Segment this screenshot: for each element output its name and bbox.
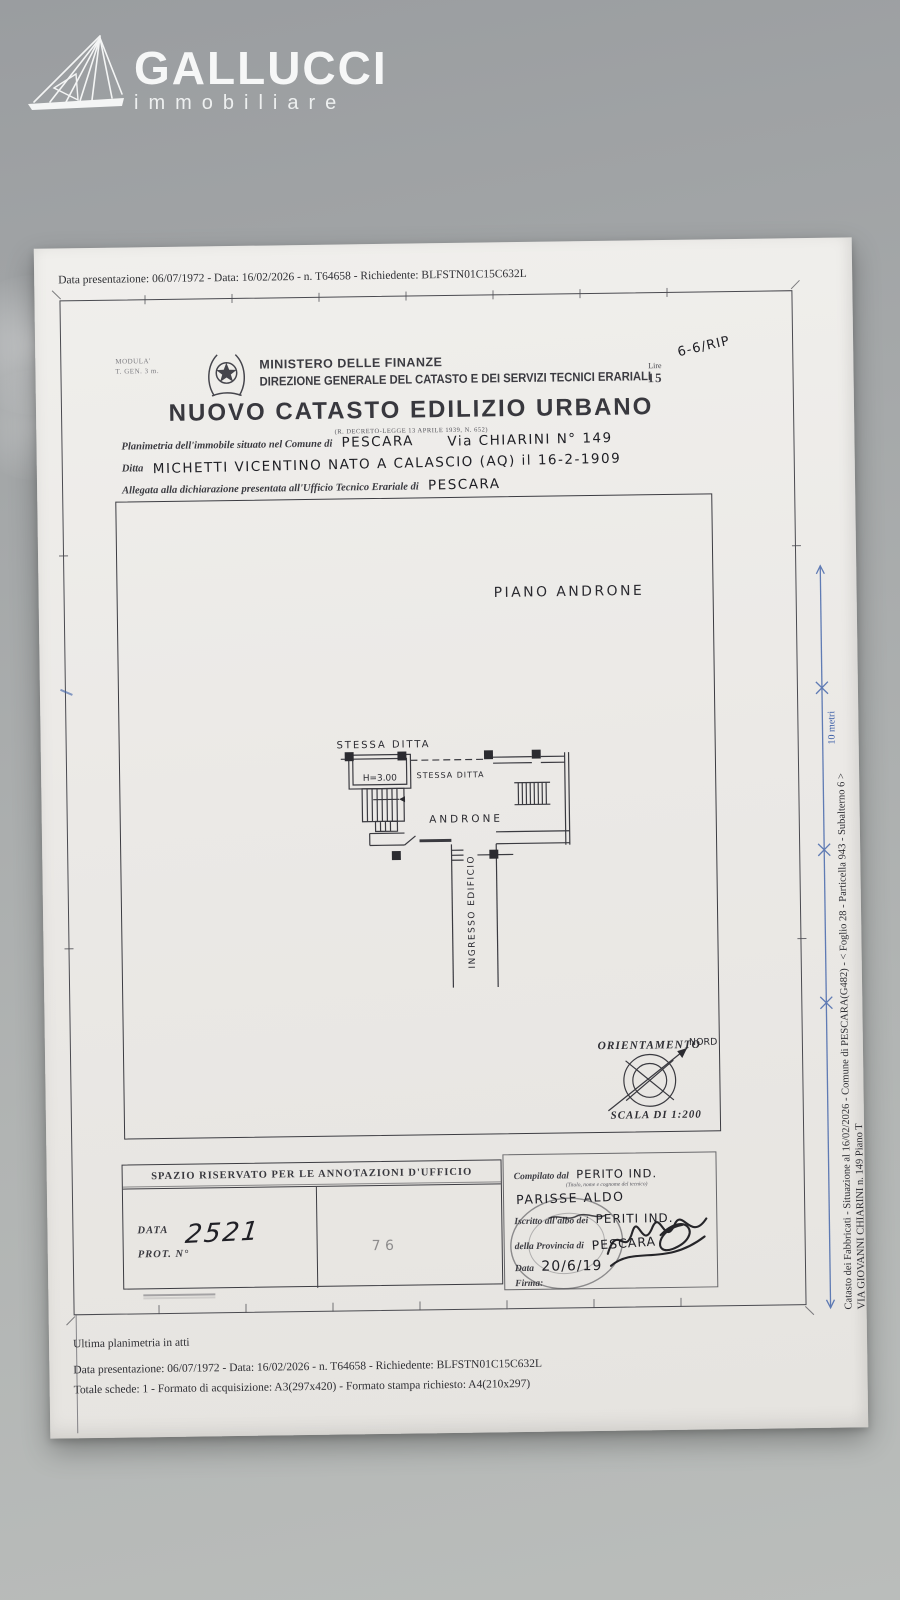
fee-label: Lire: [648, 361, 661, 370]
ditta-label: Ditta: [122, 463, 144, 474]
comune-value: PESCARA: [341, 433, 414, 451]
frame-tick: [797, 938, 806, 939]
floor-label: PIANO ANDRONE: [494, 583, 645, 601]
presentation-data-line: Data presentazione: 06/07/1972 - Data: 1…: [58, 268, 527, 287]
protocol-number: 2521: [184, 1216, 262, 1250]
fee-value: 15: [647, 371, 662, 386]
brand-subtitle: immobiliare: [134, 92, 388, 115]
frame-tick: [59, 555, 68, 556]
compiled-by-row: Compilato dal PERITO IND.: [514, 1166, 658, 1182]
fee-stamp: Lire 15: [647, 362, 662, 385]
footer-note: Ultima planimetria in atti: [73, 1337, 190, 1351]
brand-logo: GALLUCCI immobiliare: [24, 30, 388, 116]
ministry-line: MINISTERO DELLE FINANZE: [259, 355, 442, 372]
cadastral-document: Data presentazione: 06/07/1972 - Data: 1…: [34, 237, 869, 1438]
corner-mark: [52, 290, 61, 299]
stessa-ditta-top-label: STESSA DITTA: [337, 739, 431, 751]
orientation-title: ORIENTAMENTO: [598, 1039, 701, 1052]
compiled-by-label: Compilato dal: [514, 1171, 569, 1182]
corner-mark: [805, 1306, 814, 1315]
ufficio-value: PESCARA: [428, 476, 501, 494]
ingresso-edificio-label: INGRESSO EDIFICIO: [466, 855, 478, 969]
annotations-box: SPAZIO RISERVATO PER LE ANNOTAZIONI D'UF…: [122, 1159, 504, 1289]
signature-scribble: [602, 1202, 715, 1276]
footer-format-line: Totale schede: 1 - Formato di acquisizio…: [74, 1378, 531, 1396]
north-label: NORD: [689, 1037, 717, 1048]
date-label: DATA: [137, 1225, 168, 1236]
androne-label: ANDRONE: [429, 813, 503, 826]
listing-photo: GALLUCCI immobiliare Data presentazione:…: [0, 0, 900, 1600]
corner-mark: [66, 1316, 75, 1325]
floor-plan-drawing: PIANO ANDRONE STESSA DITTA H=3.00 STESSA…: [116, 494, 719, 1137]
corner-mark: [791, 280, 800, 289]
floor-plan-box: PIANO ANDRONE STESSA DITTA H=3.00 STESSA…: [115, 493, 721, 1139]
annotations-header: SPAZIO RISERVATO PER LE ANNOTAZIONI D'UF…: [123, 1160, 501, 1189]
frame-tick: [65, 948, 74, 949]
compiled-by-value: PERITO IND.: [576, 1166, 657, 1181]
comune-label: Planimetria dell'immobile situato nel Co…: [121, 439, 332, 453]
sailboat-logo-icon: [24, 30, 128, 116]
compiled-by-note: (Titolo, nome e cognome del tecnico): [566, 1181, 648, 1188]
brand-name: GALLUCCI: [134, 45, 388, 91]
footer-presentation-line: Data presentazione: 06/07/1972 - Data: 1…: [73, 1358, 542, 1377]
frame-tick: [792, 545, 801, 546]
street-value: Via CHIARINI N° 149: [448, 430, 614, 450]
protocol-label: PROT. N°: [138, 1249, 190, 1261]
faint-hand-mark: 7 6: [372, 1238, 394, 1254]
scale-label: SCALA DI 1:200: [611, 1108, 702, 1121]
compiler-box: Compilato dal PERITO IND. (Titolo, nome …: [502, 1151, 718, 1290]
stessa-ditta-mid-label: STESSA DITTA: [417, 770, 485, 780]
room-height-label: H=3.00: [363, 773, 398, 783]
modula-line1: MODULA': [115, 357, 151, 365]
modula-stamp: MODULA' T. GEN. 3 m.: [115, 357, 159, 377]
state-emblem-icon: [203, 349, 250, 400]
column-divider: [316, 1187, 318, 1288]
modula-line2: T. GEN. 3 m.: [115, 367, 159, 376]
